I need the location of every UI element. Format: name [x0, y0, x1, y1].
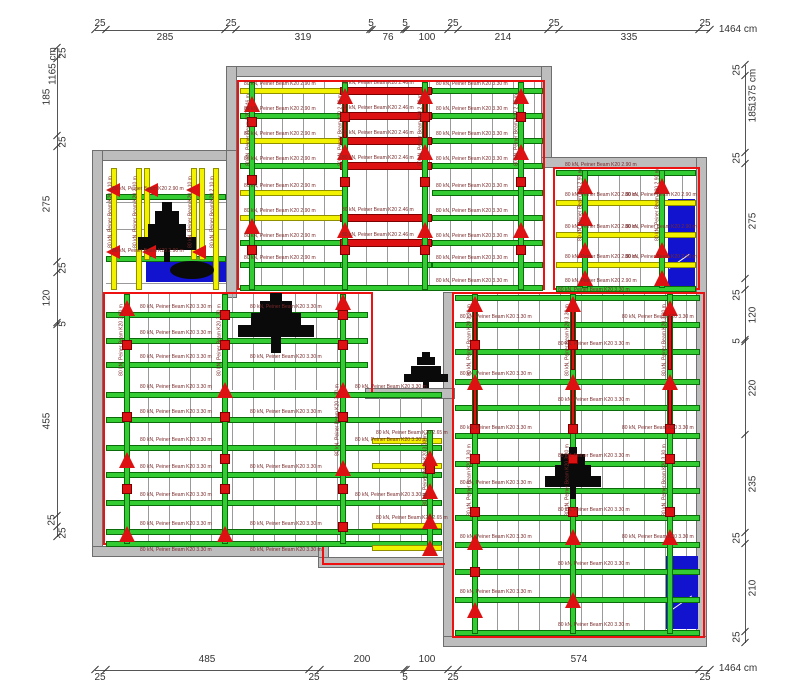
beam-label: 80 kN, Peiner Beam K20 2.10 m: [211, 176, 216, 248]
direction-arrow-icon[interactable]: [335, 294, 351, 310]
beam-label: 80 kN, Peiner Beam K20 2.90 m: [244, 184, 316, 189]
beam-label: 80 kN, Peiner Beam K20 3.30 m: [622, 315, 694, 320]
direction-arrow-icon[interactable]: [467, 602, 483, 618]
primary-beam-h[interactable]: [432, 163, 543, 169]
beam-label: 80 kN, Peiner Beam K20 3.30 m: [140, 438, 212, 443]
dim-label: 25: [732, 532, 743, 543]
primary-beam-h[interactable]: [240, 285, 543, 291]
beam-label: 80 kN, Peiner Beam K20 2.46 m: [342, 156, 414, 161]
beam-label: 80 kN, Peiner Beam K20 2.90 m: [244, 82, 316, 87]
direction-arrow-icon[interactable]: [417, 222, 433, 238]
beam-label: 80 kN, Peiner Beam K20 3.30 m: [140, 465, 212, 470]
wall: [92, 150, 237, 161]
prop-marker[interactable]: [420, 245, 430, 255]
dim-label: 25: [225, 18, 236, 29]
dim-line: [57, 48, 58, 537]
beam-label: 80 kN, Peiner Beam K20 3.30 m: [566, 304, 571, 376]
direction-arrow-icon[interactable]: [119, 526, 135, 542]
primary-beam-h[interactable]: [240, 190, 343, 196]
primary-beam-h[interactable]: [432, 240, 543, 246]
beam-label: 80 kN, Peiner Beam K20 2.90 m: [579, 169, 584, 241]
beam-label: 80 kN, Peiner Beam K20 2.46 m: [339, 94, 344, 166]
prop-marker[interactable]: [516, 245, 526, 255]
stair-symbol[interactable]: [238, 325, 314, 337]
red-boundary-line: [322, 563, 445, 565]
direction-arrow-icon[interactable]: [565, 592, 581, 608]
beam-label: 80 kN, Peiner Beam K20 3.30 m: [250, 522, 322, 527]
dim-label: 100: [419, 654, 436, 665]
beam-label: 80 kN, Peiner Beam K20 3.30 m: [140, 305, 212, 310]
primary-beam-h[interactable]: [240, 262, 343, 268]
beam-label: 80 kN, Peiner Beam K20 2.90 m: [244, 209, 316, 214]
beam-label: 80 kN, Peiner Beam K20 3.30 m: [436, 132, 508, 137]
beam-label: 80 kN, Peiner Beam K20 3.30 m: [140, 331, 212, 336]
beam-label: 80 kN, Peiner Beam K20 3.30 m: [250, 305, 322, 310]
prop-marker[interactable]: [247, 245, 257, 255]
dim-label: 1464 cm: [719, 24, 757, 35]
beam-label: 80 kN, Peiner Beam K20 3.30 m: [436, 107, 508, 112]
beam-label: 80 kN, Peiner Beam K20 3.30 m: [558, 398, 630, 403]
beam-label: 80 kN, Peiner Beam K20 2.46 m: [515, 94, 520, 166]
beam-label: 80 kN, Peiner Beam K20 3.30 m: [622, 535, 694, 540]
beam-label: 80 kN, Peiner Beam K20 2.65 m: [376, 516, 448, 521]
beam-label: 80 kN, Peiner Beam K20 3.30 m: [140, 548, 212, 553]
beam-label: 80 kN, Peiner Beam K20 3.30 m: [436, 82, 508, 87]
dim-label: 25: [58, 527, 69, 538]
dim-label: 214: [495, 32, 512, 43]
dim-label: 319: [295, 32, 312, 43]
dim-label: 25: [548, 18, 559, 29]
joist-line: [358, 392, 359, 542]
shaft-marker[interactable]: [668, 199, 695, 288]
beam-label: 80 kN, Peiner Beam K20 3.30 m: [566, 444, 571, 516]
prop-marker[interactable]: [338, 522, 348, 532]
beam-label: 80 kN, Peiner Beam K20 2.90 m: [565, 163, 637, 168]
beam-label: 80 kN, Peiner Beam K20 3.30 m: [250, 465, 322, 470]
dim-label: 335: [621, 32, 638, 43]
beam-label: 80 kN, Peiner Beam K20 2.10 m: [134, 176, 139, 248]
direction-arrow-icon[interactable]: [217, 526, 233, 542]
prop-marker[interactable]: [420, 177, 430, 187]
dim-label: 5: [368, 18, 374, 29]
beam-label: 80 kN, Peiner Beam K20 3.30 m: [436, 209, 508, 214]
dim-label: 1375 cm: [748, 69, 759, 107]
dim-label: 1464 cm: [719, 663, 757, 674]
beam-label: 80 kN, Peiner Beam K20 3.30 m: [336, 384, 341, 456]
beam-label: 80 kN, Peiner Beam K20 3.30 m: [663, 444, 668, 516]
beam-label: 80 kN, Peiner Beam K20 3.30 m: [460, 590, 532, 595]
direction-arrow-icon[interactable]: [565, 374, 581, 390]
direction-arrow-icon[interactable]: [654, 270, 670, 286]
dim-label: 235: [748, 476, 759, 493]
prop-marker[interactable]: [340, 177, 350, 187]
dim-label: 76: [382, 32, 393, 43]
dim-label: 5: [402, 18, 408, 29]
dim-label: 485: [199, 654, 216, 665]
dim-label: 5: [732, 338, 743, 344]
primary-beam-h[interactable]: [106, 338, 368, 344]
beam-label: 80 kN, Peiner Beam K20 2.90 m: [244, 107, 316, 112]
dim-label: 25: [94, 18, 105, 29]
primary-beam-h[interactable]: [106, 312, 368, 318]
beam-label: 80 kN, Peiner Beam K20 2.65 m: [376, 431, 448, 436]
primary-beam-h[interactable]: [240, 138, 343, 144]
direction-arrow-icon[interactable]: [244, 218, 260, 234]
dim-label: 25: [732, 631, 743, 642]
beam-label: 80 kN, Peiner Beam K20 3.30 m: [436, 184, 508, 189]
beam-label: 80 kN, Peiner Beam K20 2.46 m: [419, 94, 424, 166]
dim-label: 25: [308, 672, 319, 683]
beam-label: 80 kN, Peiner Beam K20 3.30 m: [558, 623, 630, 628]
beam-label: 80 kN, Peiner Beam K20 3.30 m: [250, 355, 322, 360]
primary-beam-h[interactable]: [455, 569, 700, 575]
beam-label: 80 kN, Peiner Beam K20 3.30 m: [355, 438, 427, 443]
primary-beam-h[interactable]: [106, 500, 442, 506]
direction-arrow-icon[interactable]: [662, 374, 678, 390]
dim-label: 285: [157, 32, 174, 43]
prop-marker[interactable]: [220, 484, 230, 494]
direction-arrow-icon[interactable]: [335, 460, 351, 476]
beam-label: 80 kN, Peiner Beam K20 2.46 m: [342, 208, 414, 213]
beam-label: 80 kN, Peiner Beam K20 3.30 m: [460, 535, 532, 540]
dim-label: 25: [94, 672, 105, 683]
prop-marker[interactable]: [470, 567, 480, 577]
primary-beam-h[interactable]: [432, 113, 543, 119]
dim-label: 25: [732, 289, 743, 300]
stair-symbol[interactable]: [404, 374, 448, 382]
dim-label: 120: [748, 307, 759, 324]
stair-symbol[interactable]: [545, 476, 601, 487]
dim-label: 25: [699, 672, 710, 683]
prop-marker[interactable]: [122, 412, 132, 422]
primary-beam-h[interactable]: [106, 362, 368, 368]
stair-symbol[interactable]: [417, 357, 435, 365]
beam-label: 80 kN, Peiner Beam K20 2.90 m: [625, 225, 697, 230]
beam-label: 80 kN, Peiner Beam K20 3.30 m: [558, 562, 630, 567]
beam-label: 80 kN, Peiner Beam K20 2.46 m: [342, 81, 414, 86]
beam-label: 80 kN, Peiner Beam K20 2.90 m: [112, 249, 184, 254]
prop-marker[interactable]: [122, 484, 132, 494]
stair-symbol[interactable]: [162, 202, 171, 211]
primary-beam-h[interactable]: [340, 239, 432, 247]
dim-label: 25: [447, 18, 458, 29]
ellipse-marker[interactable]: [170, 261, 214, 279]
beam-label: 80 kN, Peiner Beam K20 3.30 m: [663, 304, 668, 376]
primary-beam-h[interactable]: [106, 472, 442, 478]
beam-label: 80 kN, Peiner Beam K20 3.30 m: [436, 256, 508, 261]
direction-arrow-icon[interactable]: [217, 382, 233, 398]
dim-label: 25: [699, 18, 710, 29]
dim-label: 5: [58, 321, 69, 327]
beam-label: 80 kN, Peiner Beam K20 3.30 m: [218, 304, 223, 376]
dim-label: 25: [732, 64, 743, 75]
dim-label: 25: [58, 47, 69, 58]
dim-label: 275: [42, 196, 53, 213]
stair-symbol[interactable]: [270, 293, 282, 301]
dim-label: 220: [748, 380, 759, 397]
stair-stem[interactable]: [271, 337, 280, 353]
beam-label: 80 kN, Peiner Beam K20 3.30 m: [140, 410, 212, 415]
primary-beam-h[interactable]: [556, 262, 696, 268]
primary-beam-h[interactable]: [106, 417, 442, 423]
primary-beam-h[interactable]: [340, 262, 432, 268]
wall: [226, 150, 237, 298]
dim-label: 100: [419, 32, 436, 43]
primary-beam-h[interactable]: [240, 88, 343, 94]
primary-beam-h[interactable]: [106, 194, 226, 200]
beam-label: 80 kN, Peiner Beam K20 2.90 m: [244, 157, 316, 162]
wall: [92, 150, 103, 557]
beam-label: 80 kN, Peiner Beam K20 2.90 m: [625, 255, 697, 260]
joist-line: [232, 392, 233, 542]
stair-symbol[interactable]: [555, 465, 592, 476]
beam-label: 80 kN, Peiner Beam K20 2.90 m: [244, 234, 316, 239]
dim-label: 210: [748, 580, 759, 597]
primary-beam-h[interactable]: [455, 405, 700, 411]
dim-label: 25: [732, 152, 743, 163]
primary-beam-h[interactable]: [106, 445, 442, 451]
beam-label: 80 kN, Peiner Beam K20 3.30 m: [436, 234, 508, 239]
primary-beam-h[interactable]: [455, 630, 700, 636]
prop-marker[interactable]: [516, 177, 526, 187]
primary-beam-h[interactable]: [106, 392, 442, 398]
dim-label: 574: [571, 654, 588, 665]
beam-label: 80 kN, Peiner Beam K20 3.30 m: [622, 426, 694, 431]
stair-symbol[interactable]: [411, 366, 440, 374]
dim-label: 25: [47, 514, 58, 525]
beam-label: 80 kN, Peiner Beam K20 2.90 m: [112, 187, 184, 192]
dim-label: 185: [42, 89, 53, 106]
beam-label: 80 kN, Peiner Beam K20 3.30 m: [355, 385, 427, 390]
beam-label: 80 kN, Peiner Beam K20 3.30 m: [424, 434, 429, 506]
primary-beam-h[interactable]: [432, 215, 543, 221]
beam-label: 80 kN, Peiner Beam K20 2.46 m: [342, 233, 414, 238]
primary-beam-h[interactable]: [432, 262, 543, 268]
beam-label: 80 kN, Peiner Beam K20 3.30 m: [468, 304, 473, 376]
dim-label: 25: [447, 672, 458, 683]
beam-label: 80 kN, Peiner Beam K20 3.30 m: [436, 279, 508, 284]
dim-label: 455: [42, 413, 53, 430]
dim-label: 200: [354, 654, 371, 665]
beam-label: 80 kN, Peiner Beam K20 3.30 m: [140, 493, 212, 498]
dim-label: 25: [58, 262, 69, 273]
beam-label: 80 kN, Peiner Beam K20 3.30 m: [355, 493, 427, 498]
prop-marker[interactable]: [338, 310, 348, 320]
beam-label: 80 kN, Peiner Beam K20 3.30 m: [558, 288, 630, 293]
direction-arrow-icon[interactable]: [422, 540, 438, 556]
joist-line: [106, 283, 226, 284]
direction-arrow-icon[interactable]: [565, 529, 581, 545]
beam-v[interactable]: [571, 308, 575, 370]
beam-label: 80 kN, Peiner Beam K20 3.30 m: [250, 548, 322, 553]
beam-label: 80 kN, Peiner Beam K20 2.90 m: [244, 132, 316, 137]
beam-label: 80 kN, Peiner Beam K20 2.90 m: [625, 193, 697, 198]
beam-label: 80 kN, Peiner Beam K20 2.90 m: [565, 279, 637, 284]
red-boundary-line: [103, 292, 371, 294]
red-boundary-line: [371, 292, 373, 392]
prop-marker[interactable]: [568, 424, 578, 434]
beam-label: 80 kN, Peiner Beam K20 3.30 m: [250, 410, 322, 415]
red-boundary-line: [103, 292, 105, 543]
primary-beam-h[interactable]: [432, 190, 543, 196]
direction-arrow-icon[interactable]: [119, 452, 135, 468]
beam-label: 80 kN, Peiner Beam K20 2.10 m: [189, 176, 194, 248]
stair-symbol[interactable]: [148, 224, 186, 237]
direction-arrow-icon[interactable]: [513, 222, 529, 238]
beam-label: 80 kN, Peiner Beam K20 3.30 m: [140, 385, 212, 390]
beam-label: 80 kN, Peiner Beam K20 2.46 m: [342, 106, 414, 111]
beam-label: 80 kN, Peiner Beam K20 2.90 m: [244, 256, 316, 261]
primary-beam-h[interactable]: [240, 163, 343, 169]
beam-label: 80 kN, Peiner Beam K20 2.46 m: [342, 131, 414, 136]
wall: [226, 66, 552, 77]
stair-symbol[interactable]: [155, 211, 179, 224]
dim-label: 120: [42, 290, 53, 307]
beam-label: 80 kN, Peiner Beam K20 3.30 m: [120, 304, 125, 376]
stair-symbol[interactable]: [251, 313, 301, 325]
beam-v[interactable]: [668, 312, 672, 370]
beam-label: 80 kN, Peiner Beam K20 3.30 m: [140, 355, 212, 360]
beam-label: 80 kN, Peiner Beam K20 2.10 m: [109, 176, 114, 248]
dim-label: 5: [402, 672, 408, 683]
beam-label: 80 kN, Peiner Beam K20 3.30 m: [140, 522, 212, 527]
beam-label: 80 kN, Peiner Beam K20 3.30 m: [436, 157, 508, 162]
beam-label: 80 kN, Peiner Beam K20 2.90 m: [656, 169, 661, 241]
dim-label: 185: [748, 106, 759, 123]
stair-stem[interactable]: [570, 487, 577, 499]
primary-beam-h[interactable]: [106, 529, 442, 535]
primary-beam-h[interactable]: [340, 214, 432, 222]
beam-label: 80 kN, Peiner Beam K20 3.30 m: [468, 444, 473, 516]
prop-marker[interactable]: [338, 484, 348, 494]
floor-plan: 80 kN, Peiner Beam K20 2.90 m80 kN, Pein…: [0, 0, 803, 700]
direction-arrow-icon[interactable]: [192, 245, 206, 259]
prop-marker[interactable]: [220, 412, 230, 422]
prop-marker[interactable]: [220, 454, 230, 464]
dim-label: 25: [58, 136, 69, 147]
wall: [226, 66, 237, 161]
beam-label: 80 kN, Peiner Beam K20 3.30 m: [460, 426, 532, 431]
dim-label: 275: [748, 213, 759, 230]
beam-label: 80 kN, Peiner Beam K20 2.46 m: [247, 94, 252, 166]
prop-marker[interactable]: [338, 340, 348, 350]
prop-marker[interactable]: [340, 245, 350, 255]
